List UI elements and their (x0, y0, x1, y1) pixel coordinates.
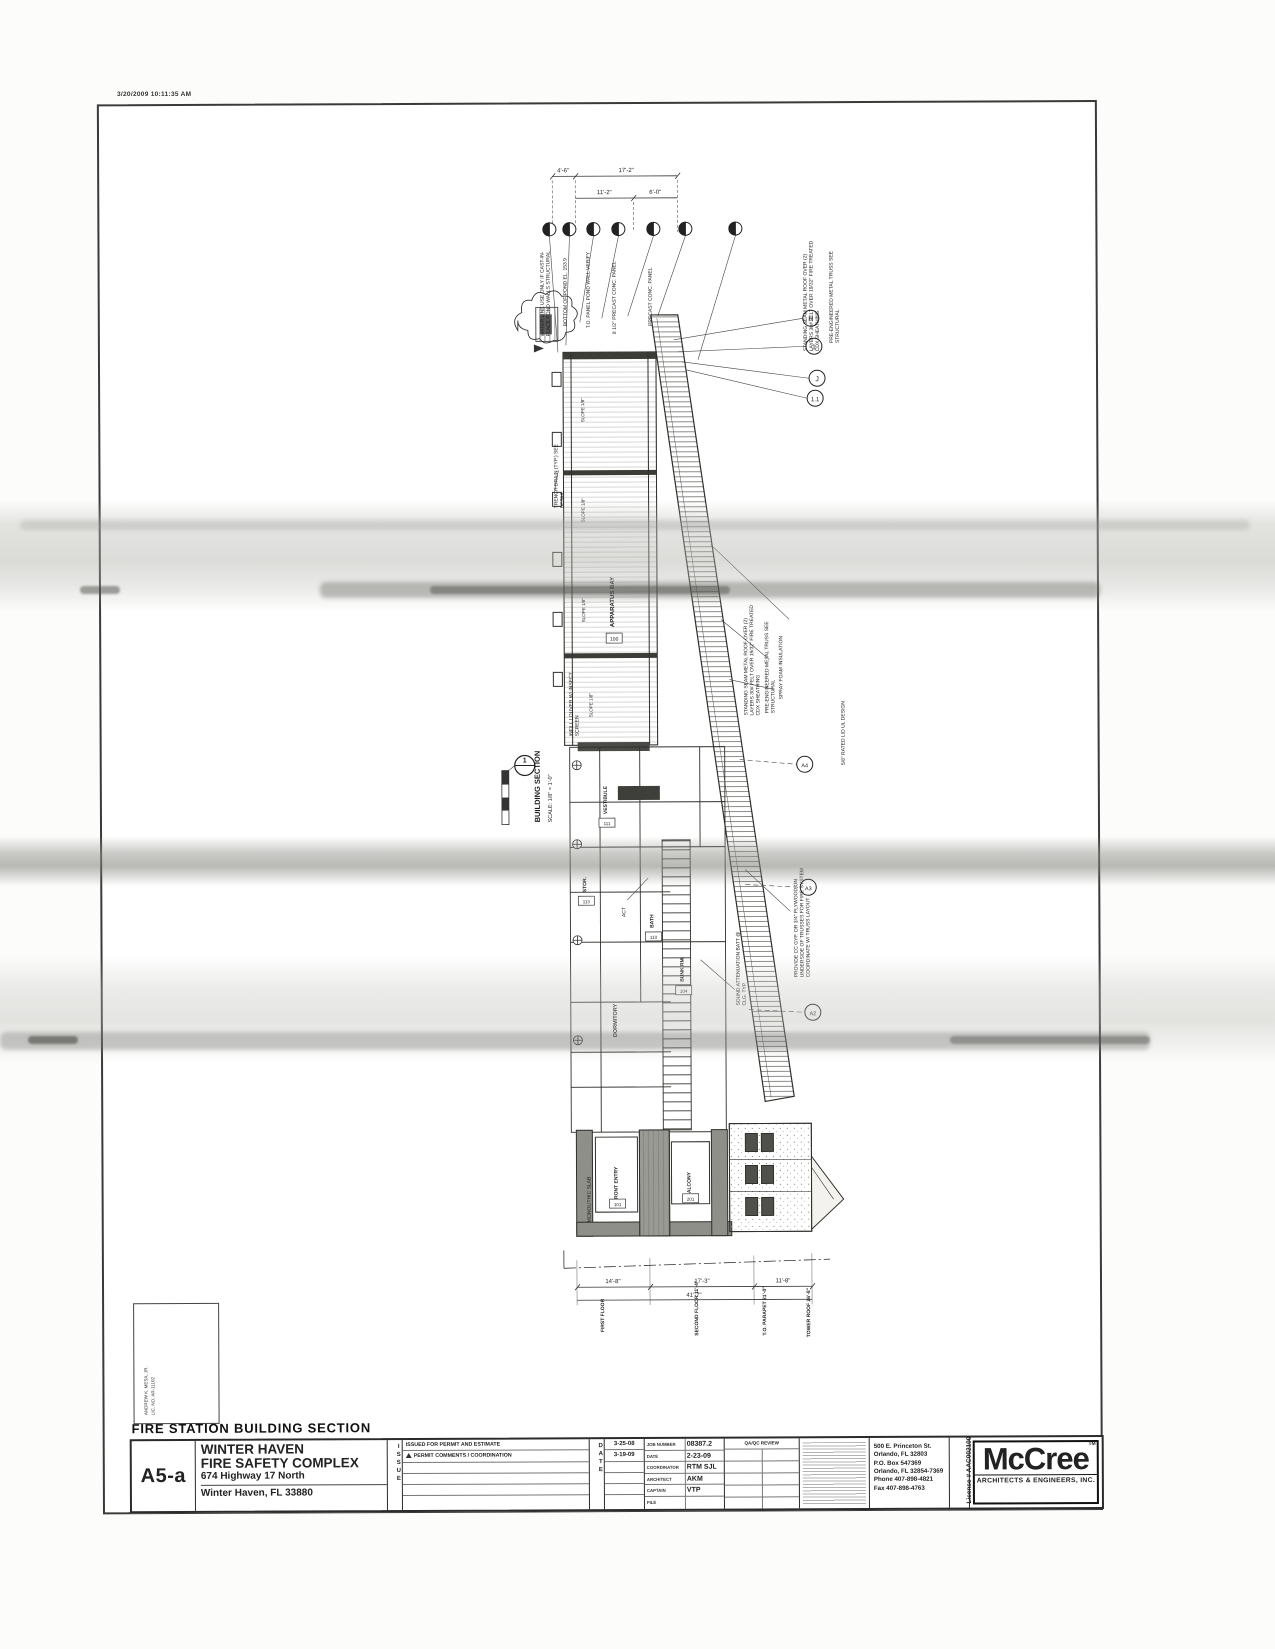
firm-addr-line: Orlando, FL 32803 (874, 1451, 949, 1460)
field-label: FILE (647, 1500, 656, 1505)
qaqc-review: QA/QC REVIEW (725, 1438, 800, 1508)
room-apparatus-bay: APPARATUS BAY (610, 577, 616, 627)
field-value: AKM (687, 1476, 703, 1483)
view-scale: SCALE: 1/8" = 1'-0" (548, 774, 554, 822)
room-balcony: BALCONY (687, 1171, 693, 1196)
issue-date-empty (605, 1473, 644, 1484)
room-tag: 100 (610, 637, 619, 643)
issue-dates: 3-25-08 3-19-09 (605, 1439, 645, 1509)
room-bunkroom: BUNK RM. (680, 956, 686, 982)
project-info: WINTER HAVEN FIRE SAFETY COMPLEX 674 Hig… (196, 1440, 388, 1511)
room-vestibule: VESTIBULE (603, 785, 609, 814)
room-tag: 111 (604, 821, 611, 826)
date-vertical-label: DATE (590, 1439, 604, 1475)
note-bottom-of-pond: BOTTOM OF POND EL. 153.9 (563, 246, 569, 326)
firm-addr-line: Fax 407-898-4763 (874, 1484, 949, 1493)
project-name: FIRE SAFETY COMPLEX (201, 1456, 387, 1471)
drawing-caption: FIRE STATION BUILDING SECTION (132, 1420, 371, 1436)
field-value: 08387.2 (687, 1441, 712, 1448)
trademark-symbol: TM (1088, 1441, 1095, 1447)
note-plywood-underside: PROVIDE CC GYP. OR 3/4" PLYWOOD ON UNDER… (794, 857, 812, 977)
title-block: A5-a WINTER HAVEN FIRE SAFETY COMPLEX 67… (130, 1435, 1104, 1513)
room-front-entry: FRONT ENTRY (613, 1166, 619, 1202)
view-title: BUILDING SECTION (533, 751, 542, 823)
issue-desc-1: ISSUED FOR PERMIT AND ESTIMATE (406, 1442, 500, 1448)
firm-logo-cell: TM McCree ARCHITECTS & ENGINEERS, INC. (970, 1437, 1102, 1508)
room-bath: BATH (649, 914, 655, 928)
field-value: VTP (687, 1487, 701, 1494)
project-city-state: Winter Haven, FL 33880 (201, 1484, 387, 1500)
room-tag: 110 (650, 935, 658, 940)
room-tag: 104 (680, 989, 688, 994)
level-second-floor: SECOND FLOOR 11'-4" (694, 1281, 700, 1336)
field-label: DATE (647, 1454, 658, 1459)
issue-column-header: ISSUE (388, 1440, 403, 1510)
note-infill-louver: INFILL LOUVER W/ INSECT SCREEN (569, 664, 581, 736)
section-title-assembly: 1 BUILDING SECTION SCALE: 1/8" = 1'-0" (502, 751, 554, 825)
level-first-floor: FIRST FLOOR (600, 1299, 606, 1332)
issue-date-1: 3-25-08 (605, 1439, 644, 1450)
issue-date-2: 3-19-09 (605, 1450, 644, 1461)
qaqc-label: QA/QC REVIEW (725, 1438, 799, 1445)
dim-bottom-3: 11'-8" (776, 1278, 791, 1284)
field-label: CAPTAIN (647, 1488, 666, 1493)
issue-date-empty (605, 1462, 644, 1473)
copyright-block (800, 1438, 870, 1508)
note-water-line: WATER LINE USE ONLY IF CAST-IN-PLACE PON… (540, 241, 552, 336)
slope-label: SLOPE 1/8" (581, 598, 586, 623)
dim-bottom-1: 14'-8" (605, 1279, 620, 1285)
field-value: 2-23-09 (687, 1452, 711, 1459)
note-standing-seam-roof: STANDING SEAM METAL ROOF OVER (2) LAYERS… (803, 233, 821, 351)
note-metal-truss: PRE-ENGINEERED METAL TRUSS SEE STRUCTURA… (829, 243, 841, 343)
grid-bubble-a2: A2 (809, 1011, 816, 1017)
firm-addr-line: Phone 407-898-4821 (874, 1476, 949, 1485)
room-storage: STOR. (582, 876, 588, 892)
grid-bubble-1-1: 1.1 (811, 397, 820, 403)
issue-rows: ISSUED FOR PERMIT AND ESTIMATE PERMIT CO… (403, 1439, 590, 1510)
qaqc-grid (762, 1448, 763, 1508)
firm-addr-line: P.O. Box 547369 (874, 1459, 949, 1468)
issue-row-1: ISSUED FOR PERMIT AND ESTIMATE (403, 1439, 589, 1451)
grid-bubble-j: J (815, 376, 819, 383)
firm-name: McCree (975, 1443, 1097, 1475)
issue-vertical-label: ISSUE (388, 1440, 402, 1484)
callout-leaders (549, 236, 736, 361)
scanned-drawing-page: 3/20/2009 10:11:35 AM (0, 0, 1275, 1649)
room-tag: 113 (583, 899, 591, 904)
copyright-text-illegible (803, 1442, 866, 1504)
note-top-of-panel: T.O. PANEL POND WALL VERIFY (586, 248, 592, 328)
seal-license-number: LIC. NO. AR-11102 (150, 1377, 155, 1415)
dim-top-3: 11'-2" (597, 190, 612, 196)
sheet-number: A5-a (132, 1441, 196, 1511)
field-label: ARCHITECT (647, 1477, 672, 1482)
date-column-header: DATE (590, 1439, 605, 1509)
note-standing-seam-roof-2: STANDING SEAM METAL ROOF OVER (2) LAYERS… (744, 603, 762, 715)
issue-desc-2: PERMIT COMMENTS / COORDINATION (414, 1453, 512, 1459)
firm-address: 500 E. Princeton St. Orlando, FL 32803 P… (870, 1438, 950, 1508)
note-precast-panel-8: 8 1/2" PRECAST CONC. PANEL (612, 246, 618, 334)
firm-logo-box: TM McCree ARCHITECTS & ENGINEERS, INC. (973, 1440, 1099, 1505)
room-tag: 101 (614, 1202, 622, 1207)
grid-bubble-a4: A4 (801, 763, 808, 769)
issue-date-empty (605, 1484, 644, 1495)
info-fields: JOB NUMBER 08387.2 DATE 2-23-09 COORDINA… (645, 1439, 725, 1509)
callout-markers (543, 222, 742, 236)
act-ceiling-label: ACT (621, 907, 627, 917)
field-label: JOB NUMBER (647, 1442, 676, 1447)
section-number: 1 (523, 757, 527, 764)
note-trench-drain: TRENCH DRAIN (TYP.) SEE DETAIL (554, 438, 566, 508)
note-metal-truss-2: PRE-ENGINEERED METAL TRUSS SEE STRUCTURA… (765, 617, 777, 713)
field-label: COORDINATOR (647, 1465, 679, 1470)
issue-row-empty (403, 1484, 589, 1496)
firm-addr-line: Orlando, FL 32854-7369 (874, 1468, 949, 1477)
room-tag: 201 (687, 1197, 695, 1202)
slope-label: SLOPE 1/8" (580, 398, 585, 423)
seal-architect-name: ANDREW K. MESA, JR. (143, 1366, 148, 1415)
issue-row-empty (403, 1473, 589, 1485)
dim-top-1: 4'-6" (557, 168, 569, 174)
dim-top-4: 6'-0" (649, 190, 661, 196)
issue-row-empty (403, 1496, 589, 1508)
level-parapet: T.O. PARAPET 21'-0" (762, 1286, 768, 1335)
revision-triangle-icon (406, 1453, 412, 1458)
level-tower-roof: TOWER ROOF 26'-8" (806, 1288, 812, 1337)
firm-addr-line: 500 E. Princeton St. (874, 1443, 949, 1452)
slope-label: SLOPE 1/8" (588, 693, 593, 718)
room-dormitory: DORMITORY (613, 1003, 619, 1037)
drawing-sheet: 4'-6" 17'-2" 11'-2" 6'-0" (0, 0, 1275, 1649)
issue-date-empty (605, 1495, 644, 1506)
note-spray-foam: SPRAY FOAM INSULATION (779, 629, 785, 699)
note-sound-batt: SOUND ATTENUATION BATT @ CLG. TYP. (736, 924, 748, 1006)
dim-top-2: 17'-2" (618, 168, 633, 174)
note-monolithic-slab: MONOLITHIC SLAB (587, 1152, 593, 1222)
issue-row-2: PERMIT COMMENTS / COORDINATION (403, 1451, 589, 1463)
slope-label: SLOPE 1/8" (581, 498, 586, 523)
note-rated-lid: 5/8" RATED LID UL DESIGN (841, 695, 847, 765)
issue-row-empty (403, 1462, 589, 1474)
note-precast-panel: PRECAST CONC. PANEL (649, 254, 655, 326)
field-value: RTM SJL (687, 1464, 717, 1471)
project-address: 674 Highway 17 North (201, 1470, 387, 1483)
